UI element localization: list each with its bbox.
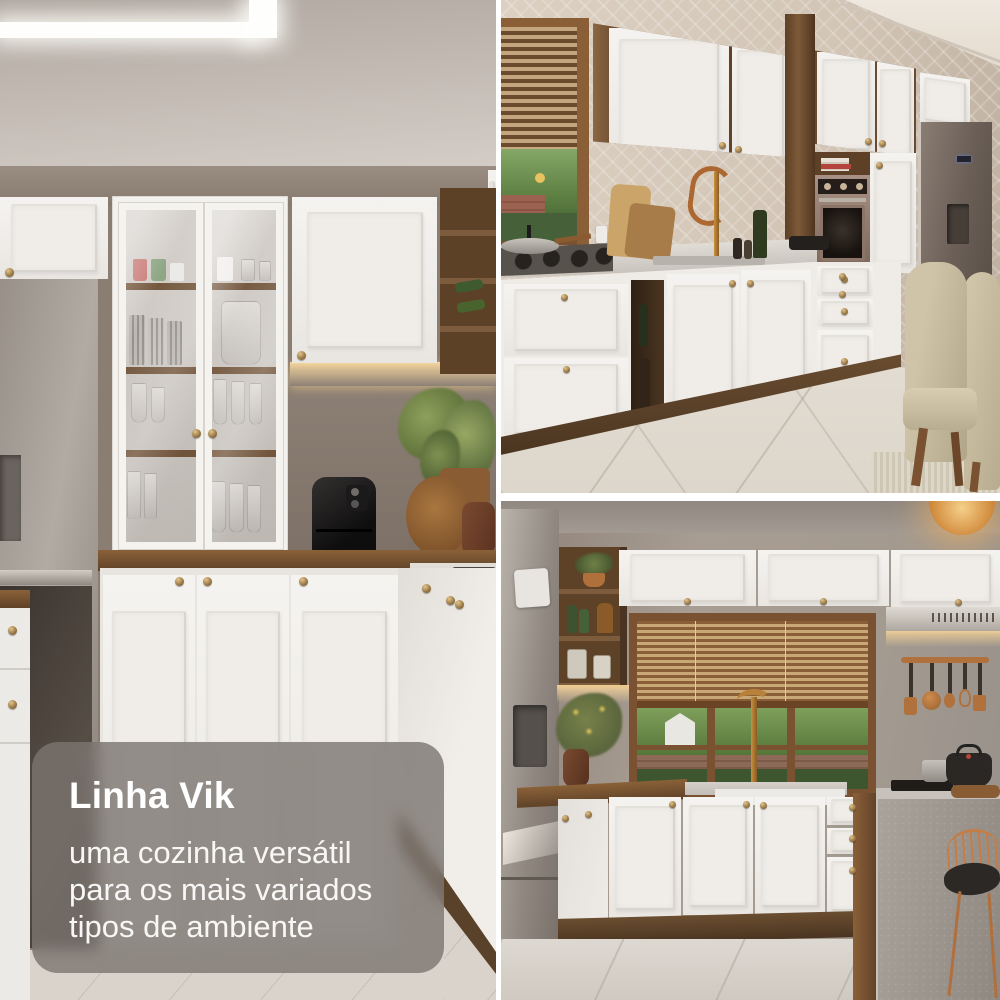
air-fryer-dial xyxy=(351,500,359,508)
cabinet-knob xyxy=(865,138,872,145)
photo-kitchen-line xyxy=(501,0,1000,493)
cabinet-knob xyxy=(297,351,306,360)
utensil-ladle-disc xyxy=(922,691,941,710)
faucet xyxy=(714,172,719,258)
cabinet-knob xyxy=(203,577,212,586)
base-cabinet-door xyxy=(755,797,825,915)
caption-card: Linha Vik uma cozinha versátil para os m… xyxy=(32,742,444,973)
glass-door xyxy=(119,203,203,549)
cabinet-knob xyxy=(422,584,431,593)
utensil-handle xyxy=(930,663,934,693)
utensil-spoon-head xyxy=(944,693,955,708)
cabinet-knob xyxy=(8,700,17,709)
vase xyxy=(563,749,589,787)
cabinet-knob xyxy=(175,577,184,586)
caption-subtitle: uma cozinha versátil para os mais variad… xyxy=(69,834,416,945)
copper-pot xyxy=(583,573,605,587)
ceiling-light-cove xyxy=(0,22,255,38)
fridge-dispenser xyxy=(513,705,547,767)
cabinet-knob xyxy=(879,140,886,147)
cabinet-knob xyxy=(839,291,846,298)
base-cabinet-door xyxy=(683,797,753,915)
oven-dial xyxy=(840,183,847,190)
open-shelf-unit xyxy=(440,188,496,374)
cabinet-knob xyxy=(562,815,569,822)
open-shelf-unit xyxy=(559,547,627,687)
air-fryer-dial xyxy=(351,488,359,496)
fridge-dispenser xyxy=(947,204,969,244)
pepper-grinder xyxy=(744,240,752,259)
island-counter-wood xyxy=(0,590,30,608)
cabinet-knob xyxy=(719,142,726,149)
caption-subtitle-line: uma cozinha versátil xyxy=(69,834,416,871)
cabinet-knob xyxy=(669,801,676,808)
steel-pot xyxy=(922,760,949,782)
wall-cabinet-door xyxy=(877,62,914,162)
floor xyxy=(501,939,877,1000)
fridge-display xyxy=(957,156,971,162)
suncatcher xyxy=(535,173,545,183)
cutting-board xyxy=(624,202,676,261)
cutting-board-round xyxy=(406,476,470,556)
pot xyxy=(789,236,829,250)
refrigerator xyxy=(501,509,559,1000)
utensil-handle xyxy=(978,663,982,697)
air-fryer-basket-seam xyxy=(316,529,372,532)
hood-light xyxy=(886,631,1000,647)
range-hood xyxy=(886,607,1000,633)
bottle-amber xyxy=(597,603,613,633)
bottle xyxy=(579,609,589,633)
oven-door xyxy=(820,205,865,261)
blind-cord xyxy=(785,621,786,703)
cabinet-knob xyxy=(743,801,750,808)
kettle xyxy=(946,753,992,787)
window-blind xyxy=(501,27,577,149)
window xyxy=(501,18,589,256)
utensil-spatula-head xyxy=(904,697,917,715)
ceiling xyxy=(501,501,1000,533)
caption-subtitle-line: para os mais variados xyxy=(69,871,416,908)
book-red xyxy=(821,164,851,169)
cabinet-knob xyxy=(585,811,592,818)
wall-cabinet-door xyxy=(920,72,970,129)
power-outlet xyxy=(596,226,607,243)
cabinet-knob xyxy=(729,280,736,287)
white-house xyxy=(665,713,695,747)
cabinet-knob xyxy=(849,867,856,874)
utensil-handle xyxy=(963,663,967,691)
cabinet-knob xyxy=(849,804,856,811)
fridge-handle xyxy=(0,570,92,585)
cabinet-knob xyxy=(446,596,455,605)
cabinet-knob xyxy=(841,308,848,315)
fridge-dispenser xyxy=(0,455,21,541)
wine-bottle xyxy=(454,279,483,294)
utensil-turner-head xyxy=(973,695,986,711)
hood-vents xyxy=(932,613,996,622)
air-fryer xyxy=(312,477,376,557)
jar xyxy=(593,655,611,679)
cabinet-knob xyxy=(299,577,308,586)
vase xyxy=(462,502,495,557)
cabinet-knob xyxy=(8,626,17,635)
chair-seat xyxy=(903,388,977,430)
plant xyxy=(575,553,613,575)
cabinet-knob xyxy=(760,802,767,809)
cabinet-knob xyxy=(839,273,846,280)
utensil-spatula xyxy=(909,663,913,699)
fridge-handle xyxy=(503,821,559,865)
oven-niche-shelf xyxy=(815,152,870,175)
fridge-door-seam xyxy=(501,877,559,880)
base-cabinet-door xyxy=(609,797,681,919)
utensil-handle xyxy=(948,663,952,695)
cabinet-knob xyxy=(876,162,883,169)
caption-title: Linha Vik xyxy=(69,775,416,817)
wall-cabinet xyxy=(0,197,108,279)
kitchen-island xyxy=(0,590,30,1000)
oven-dial xyxy=(856,183,863,190)
cabinet-knob xyxy=(455,600,464,609)
wine-bottle xyxy=(456,299,485,314)
wine-bottle xyxy=(639,304,648,346)
drawer-seam xyxy=(0,668,30,670)
cabinet-knob xyxy=(192,429,201,438)
serving-board xyxy=(951,785,1000,798)
utensil-rail xyxy=(901,657,989,663)
bottle xyxy=(567,605,577,633)
dining-chair xyxy=(964,272,1000,490)
tall-cabinet-door xyxy=(870,153,916,273)
frying-pan xyxy=(501,238,559,254)
kettle-knob xyxy=(966,754,971,759)
photo-kitchen-window xyxy=(501,501,1000,1000)
cabinet-knob xyxy=(561,294,568,301)
jar xyxy=(567,649,587,679)
drawer-seam xyxy=(0,742,30,744)
cabinet-knob xyxy=(684,598,691,605)
fridge-panel xyxy=(514,568,551,608)
caption-subtitle-line: tipos de ambiente xyxy=(69,908,416,945)
cabinet-knob xyxy=(735,146,742,153)
cabinet-knob xyxy=(563,366,570,373)
glass-door xyxy=(205,203,283,549)
oven-handle xyxy=(819,198,866,202)
wall-cabinet-door xyxy=(891,550,1000,607)
cabinet-knob xyxy=(208,429,217,438)
cabinet-knob xyxy=(841,358,848,365)
wall-cabinet xyxy=(292,197,437,363)
mullion xyxy=(707,707,715,789)
wine-bottle xyxy=(640,358,650,410)
faucet-spout xyxy=(737,689,771,711)
cabinet-knob xyxy=(820,598,827,605)
cabinet-knob xyxy=(849,835,856,842)
cabinet-knob xyxy=(5,268,14,277)
wood-panel-column xyxy=(785,14,815,264)
oven-control-panel xyxy=(818,179,867,194)
glass-display-cabinet xyxy=(112,196,288,558)
oven-dial xyxy=(824,183,831,190)
built-in-oven xyxy=(815,175,870,267)
mullion xyxy=(787,707,795,789)
pepper-grinder xyxy=(733,238,742,259)
oil-bottle xyxy=(753,210,767,258)
blind-cord xyxy=(695,621,696,703)
cabinet-knob xyxy=(955,599,962,606)
ceiling-light-cove xyxy=(249,0,277,38)
cabinet-knob xyxy=(747,280,754,287)
utensil-whisk xyxy=(959,689,971,707)
